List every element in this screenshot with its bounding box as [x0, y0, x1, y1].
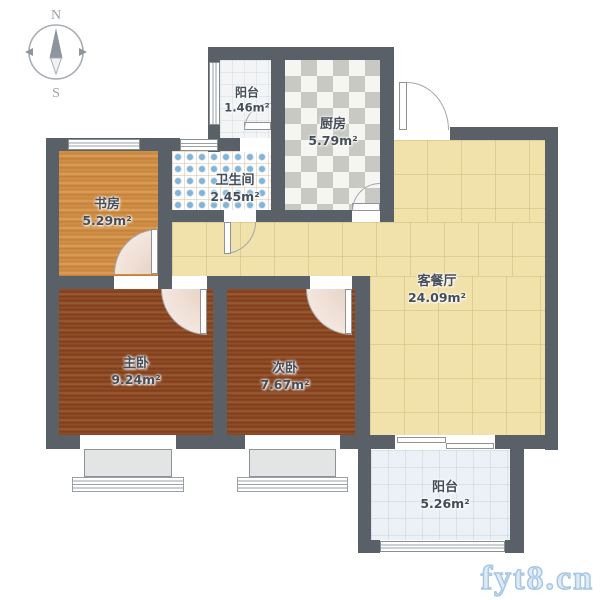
room-area: 5.29m² [82, 213, 131, 229]
compass-south-label: S [52, 86, 60, 100]
wall-segment [256, 210, 285, 222]
room-label-bathroom: 卫生间 2.45m² [210, 173, 259, 205]
room-name: 次卧 [260, 361, 309, 377]
compass-south-arrow [51, 58, 62, 74]
room-area: 1.46m² [224, 100, 269, 114]
master-door-opening [172, 276, 207, 289]
room-label-balcony-bottom: 阳台 5.26m² [420, 480, 469, 512]
room-label-balcony-top: 阳台 1.46m² [224, 85, 269, 114]
wall-segment [510, 435, 524, 553]
room-name: 书房 [82, 197, 131, 213]
bathroom-door-leaf [224, 222, 231, 254]
wall-segment [271, 47, 285, 222]
master-bay-frame [72, 477, 184, 492]
wall-segment [505, 540, 524, 553]
room-area: 2.45m² [210, 189, 259, 205]
room-area: 7.67m² [260, 377, 309, 393]
room-label-kitchen: 厨房 5.79m² [308, 117, 357, 149]
floor-plan: 阳台 1.46m² 厨房 5.79m² 卫生间 2.45m² 书房 5.29m²… [0, 0, 600, 600]
wall-segment [285, 210, 352, 222]
room-area: 5.79m² [308, 133, 357, 149]
compass-north-arrow [50, 28, 63, 58]
wall-segment [380, 47, 394, 222]
room-name: 卫生间 [210, 173, 259, 189]
study-door-leaf [151, 229, 158, 274]
room-area: 9.24m² [111, 372, 160, 388]
room-label-study: 书房 5.29m² [82, 197, 131, 229]
entrance-door-arc [407, 82, 449, 130]
master-bay-window [84, 449, 172, 477]
room-label-master: 主卧 9.24m² [111, 356, 160, 388]
second-bay-frame [237, 477, 348, 492]
master-door-leaf [200, 289, 207, 334]
wall-segment [355, 276, 370, 449]
study-door-opening [114, 276, 158, 289]
balcony-top-window [209, 62, 220, 125]
wall-segment [495, 435, 558, 449]
wall-segment [46, 276, 114, 289]
room-name: 客餐厅 [408, 274, 466, 290]
wall-segment [545, 127, 558, 450]
wall-segment [158, 210, 224, 222]
wall-segment [176, 435, 245, 449]
room-name: 厨房 [308, 117, 357, 133]
room-name: 主卧 [111, 356, 160, 372]
room-name: 阳台 [224, 85, 269, 100]
second-door-opening [310, 276, 352, 289]
wall-segment [46, 435, 80, 449]
bathroom-window [180, 139, 218, 151]
wall-segment [358, 435, 371, 553]
room-label-second: 次卧 7.67m² [260, 361, 309, 393]
study-window [68, 139, 140, 150]
second-door-leaf [345, 289, 352, 334]
wall-segment [213, 276, 227, 449]
sliding-door-panel [446, 443, 494, 449]
sliding-door-panel [397, 437, 446, 443]
room-area: 24.09m² [408, 290, 466, 306]
bathroom-door-opening [224, 210, 256, 222]
compass-icon: N S [10, 4, 102, 100]
wall-segment [450, 127, 558, 140]
compass-north-label: N [51, 8, 61, 23]
entrance-door-leaf [399, 82, 407, 130]
master-bay-opening [80, 435, 176, 449]
wall-segment [208, 47, 393, 60]
wall-segment [358, 540, 380, 553]
watermark: fyt8.cn [481, 560, 594, 598]
kitchen-door-opening [352, 210, 380, 222]
room-name: 阳台 [420, 480, 469, 496]
wall-segment [218, 138, 240, 151]
balcony-bottom-window [380, 541, 505, 552]
second-bay-window [249, 449, 336, 477]
room-area: 5.26m² [420, 496, 469, 512]
room-label-living: 客餐厅 24.09m² [408, 274, 466, 306]
wall-segment [46, 138, 59, 449]
second-bay-opening [245, 435, 340, 449]
living-floor-top [393, 140, 545, 222]
wall-segment [227, 276, 310, 289]
balcony-top-door-opening [240, 138, 271, 152]
